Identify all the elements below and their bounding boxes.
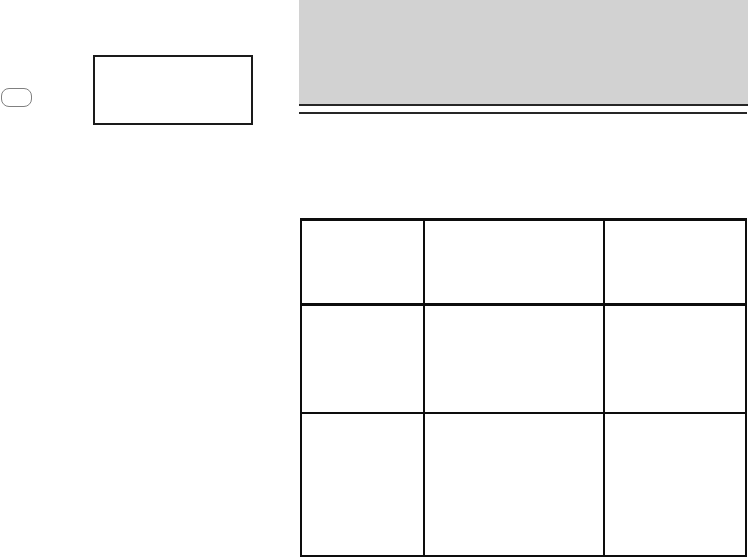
- table-cell: [424, 305, 604, 414]
- table-cell: [604, 220, 746, 305]
- table-cell: [604, 305, 746, 414]
- table-cell: [604, 413, 746, 556]
- table-cell: [424, 220, 604, 305]
- header-band: [299, 0, 748, 106]
- table-cell: [301, 413, 424, 556]
- table-cell: [301, 220, 424, 305]
- table-row: [301, 413, 746, 556]
- placeholder-table: [300, 218, 747, 557]
- table-body: [301, 220, 746, 557]
- rectangle-placeholder: [93, 55, 253, 125]
- pill-outline: [1, 88, 32, 107]
- table-row: [301, 220, 746, 305]
- table-cell: [424, 413, 604, 556]
- table-row: [301, 305, 746, 414]
- document-page: [0, 0, 748, 559]
- header-double-rule-lower: [299, 112, 747, 114]
- table-cell: [301, 305, 424, 414]
